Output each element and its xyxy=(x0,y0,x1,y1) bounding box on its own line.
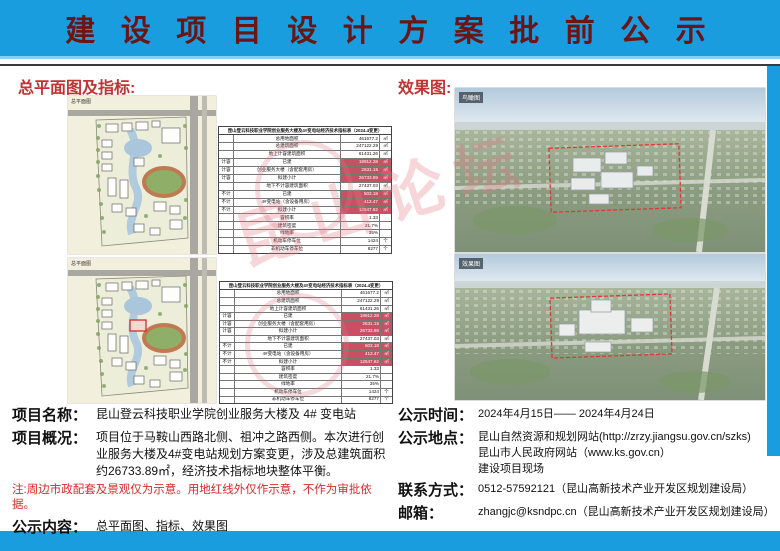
notice-content-label: 公示内容： xyxy=(12,516,96,537)
table-row: 不计 4#变电站（含设备用房） 413.47 ㎡ xyxy=(219,199,391,207)
table-row: 总建筑面积 247122.29 ㎡ xyxy=(219,143,391,151)
table-row: 不计 拟建小计 12547.62 ㎡ xyxy=(220,359,392,367)
table-row: 总建筑面积 247122.29 ㎡ xyxy=(220,298,392,306)
table-row: 机动车停车位 1424 个 xyxy=(219,238,391,246)
table-row: 计容 已建 18912.28 ㎡ xyxy=(219,159,391,167)
table-row: 建筑密度 21.7% xyxy=(220,374,392,382)
notice-place-row: 公示地点： 昆山自然资源和规划网站(http://zrzy.jiangsu.go… xyxy=(398,427,774,477)
contact-value: 0512-57592121（昆山高新技术产业开发区规划建设局） xyxy=(478,479,753,497)
table-title: 昆山登云科技职业学院创业服务大楼及4#变电站经济技术指标表（2024.4变更） xyxy=(219,127,391,135)
table-row: 机动车停车位 1424 个 xyxy=(220,389,392,397)
aerial-rendering-2-graphic xyxy=(455,254,765,400)
table-row: 地上计容建筑面积 61431.26 ㎡ xyxy=(220,306,392,314)
table-row: 不计 已建 503.18 ㎡ xyxy=(219,191,391,199)
page-title: 建 设 项 目 设 计 方 案 批 前 公 示 xyxy=(65,6,715,50)
table-row: 计容 创业服务大楼（含配套用房） 2631.15 ㎡ xyxy=(219,167,391,175)
site-plan-image-1: 总平面图 xyxy=(68,96,216,254)
table-row: 不计 4#变电站（含设备用房） 413.47 ㎡ xyxy=(220,351,392,359)
project-name-label: 项目名称： xyxy=(12,404,96,425)
table-row: 计容 拟建小计 26733.89 ㎡ xyxy=(219,175,391,183)
aerial-rendering-1: 鸟瞰图 xyxy=(455,88,765,252)
table-row: 地下不计容建筑面积 27437.03 ㎡ xyxy=(219,183,391,191)
table-row: 容积率 1.33 xyxy=(219,214,391,222)
indicator-table-2: 昆山登云科技职业学院创业服务大楼及4#变电站经济技术指标表（2024.4变更） … xyxy=(219,281,393,404)
project-info-left: 项目名称： 昆山登云科技职业学院创业服务大楼及 4# 变电站 项目概况： 项目位… xyxy=(12,404,394,539)
site-plan-image-2: 总平面图 xyxy=(68,258,216,403)
contact-row: 联系方式： 0512-57592121（昆山高新技术产业开发区规划建设局） xyxy=(398,479,774,500)
indicator-table-1: 昆山登云科技职业学院创业服务大楼及4#变电站经济技术指标表（2024.4变更） … xyxy=(218,126,392,254)
right-border-strip xyxy=(767,66,780,456)
contact-label: 联系方式： xyxy=(398,479,478,500)
rendering-caption: 效果图 xyxy=(459,258,483,269)
table-row: 总用地面积 461677.2 ㎡ xyxy=(219,135,391,143)
email-row: 邮箱： zhangjc@ksndpc.cn（昆山高新技术产业开发区规划建设局） xyxy=(398,502,774,523)
aerial-rendering-1-graphic xyxy=(455,88,765,252)
table-row: 不计 已建 503.18 ㎡ xyxy=(220,343,392,351)
site-plan-caption: 总平面图 xyxy=(71,98,91,105)
table-row: 不计 拟建小计 12547.62 ㎡ xyxy=(219,207,391,215)
site-plan-2-graphic xyxy=(68,258,216,403)
rendering-caption: 鸟瞰图 xyxy=(459,92,483,103)
email-value: zhangjc@ksndpc.cn（昆山高新技术产业开发区规划建设局） xyxy=(478,502,774,520)
header-banner: 建 设 项 目 设 计 方 案 批 前 公 示 xyxy=(0,0,780,59)
table-row: 建筑密度 21.7% xyxy=(219,222,391,230)
project-name-row: 项目名称： 昆山登云科技职业学院创业服务大楼及 4# 变电站 xyxy=(12,404,394,425)
table-row: 计容 创业服务大楼（含配套用房） 2631.15 ㎡ xyxy=(220,321,392,329)
project-info-right: 公示时间： 2024年4月15日—— 2024年4月24日 公示地点： 昆山自然… xyxy=(398,404,774,525)
table-body: 总用地面积 461677.2 ㎡ 总建筑面积 247122.29 ㎡ 地上计容建… xyxy=(220,290,392,403)
site-plan-caption: 总平面图 xyxy=(71,260,91,267)
notice-place-label: 公示地点： xyxy=(398,427,478,448)
table-row: 总用地面积 461677.2 ㎡ xyxy=(220,290,392,298)
project-overview-label: 项目概况： xyxy=(12,427,96,448)
notice-time-row: 公示时间： 2024年4月15日—— 2024年4月24日 xyxy=(398,404,774,425)
notice-time-label: 公示时间： xyxy=(398,404,478,425)
notice-place-value: 昆山自然资源和规划网站(http://zrzy.jiangsu.gov.cn/s… xyxy=(478,427,751,477)
table-title: 昆山登云科技职业学院创业服务大楼及4#变电站经济技术指标表（2024.4变更） xyxy=(220,282,392,290)
highlighted-new-building xyxy=(130,320,146,331)
project-overview-row: 项目概况： 项目位于马鞍山西路北侧、祖冲之路西侧。本次进行创业服务大楼及4#变电… xyxy=(12,427,394,480)
table-row: 绿地率 35% xyxy=(219,230,391,238)
aerial-rendering-2: 效果图 xyxy=(455,254,765,400)
table-row: 非机动车停车位 8277 个 xyxy=(219,246,391,253)
header-divider xyxy=(0,64,780,66)
table-row: 计容 拟建小计 26733.89 ㎡ xyxy=(220,328,392,336)
disclaimer-note: 注:周边市政配套及景观仅为示意。用地红线外仅作示意，不作为审批依据。 xyxy=(12,483,394,513)
rendering-section-heading: 效果图: xyxy=(398,74,451,98)
site-plan-section-heading: 总平面图及指标: xyxy=(18,74,135,98)
project-overview-value: 项目位于马鞍山西路北侧、祖冲之路西侧。本次进行创业服务大楼及4#变电站规划方案变… xyxy=(96,427,394,480)
notice-content-value: 总平面图、指标、效果图 xyxy=(96,516,228,535)
project-name-value: 昆山登云科技职业学院创业服务大楼及 4# 变电站 xyxy=(96,404,356,423)
site-plan-1-graphic xyxy=(68,96,216,254)
email-label: 邮箱： xyxy=(398,502,478,523)
notice-content-row: 公示内容： 总平面图、指标、效果图 xyxy=(12,516,394,537)
table-row: 计容 已建 18912.28 ㎡ xyxy=(220,313,392,321)
table-row: 容积率 1.33 xyxy=(220,366,392,374)
table-row: 地下不计容建筑面积 27437.03 ㎡ xyxy=(220,336,392,344)
notice-time-value: 2024年4月15日—— 2024年4月24日 xyxy=(478,404,655,422)
notice-poster: 建 设 项 目 设 计 方 案 批 前 公 示 总平面图及指标: 效果图: 总平… xyxy=(0,0,780,551)
table-body: 总用地面积 461677.2 ㎡ 总建筑面积 247122.29 ㎡ 地上计容建… xyxy=(219,135,391,253)
table-row: 非机动车停车位 8277 个 xyxy=(220,397,392,404)
table-row: 地上计容建筑面积 61431.26 ㎡ xyxy=(219,151,391,159)
table-row: 绿地率 35% xyxy=(220,381,392,389)
